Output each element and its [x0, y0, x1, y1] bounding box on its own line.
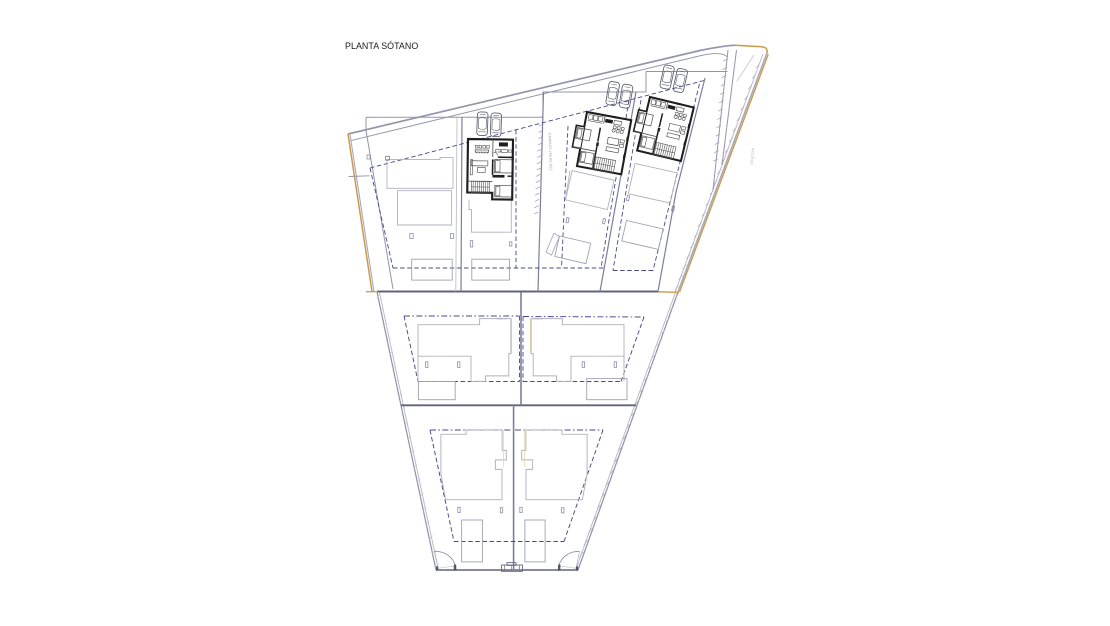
svg-text:PLANTA SÓTANO: PLANTA SÓTANO — [345, 41, 418, 51]
svg-text:ACC. 2: ACC. 2 — [533, 317, 543, 321]
svg-text:ACC. 1: ACC. 1 — [497, 317, 507, 321]
